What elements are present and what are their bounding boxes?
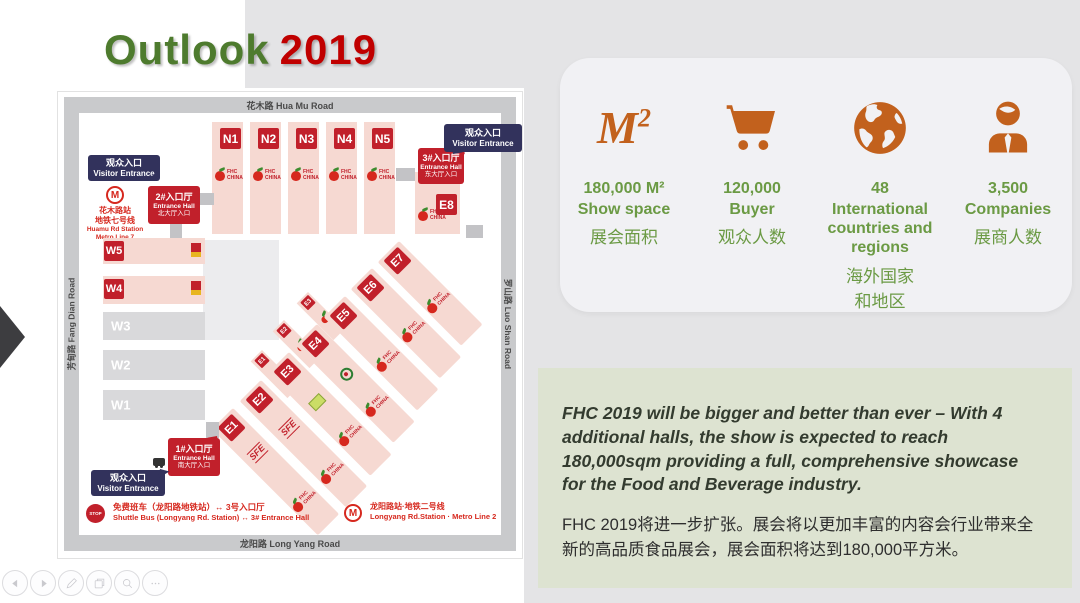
road-luo-shan: 罗山路 Luo Shan Road: [501, 113, 516, 535]
corridor: [170, 224, 182, 239]
hall-n4: N4 FHC CHINA: [326, 122, 357, 234]
prowine-logo: [191, 281, 201, 295]
stat-label: International countries and regions: [816, 200, 944, 258]
page-title: Outlook2019: [104, 26, 377, 74]
stat-value: 3,500: [944, 180, 1072, 198]
hall-n5: N5 FHC CHINA: [364, 122, 395, 234]
stat-value: 180,000 M²: [560, 180, 688, 198]
fhc-china-logo: FHC CHINA: [253, 170, 284, 181]
corridor: [200, 193, 214, 205]
hall-n1: N1 FHC CHINA: [212, 122, 243, 234]
stat-label-zh: 海外国家和地区: [838, 262, 922, 312]
previous-slide-button[interactable]: [2, 570, 28, 596]
fhc-china-logo: FHC CHINA: [374, 344, 404, 374]
pen-tool-button[interactable]: [58, 570, 84, 596]
apple-icon: [418, 211, 428, 221]
stat-label: Buyer: [688, 200, 816, 219]
title-outlook: Outlook: [104, 26, 270, 73]
metro-line2-note: 龙阳路站·地铁二号线 Longyang Rd.Station · Metro L…: [370, 502, 520, 522]
prowine-logo: [191, 243, 201, 257]
fhc-china-logo: FHC CHINA: [329, 170, 360, 181]
hall-w5-label: W5: [104, 241, 124, 261]
description-block: FHC 2019 will be bigger and better than …: [538, 368, 1072, 588]
hall-w2-label: W2: [111, 358, 131, 373]
central-plaza: [203, 240, 279, 340]
metro-line7-label: 花木路站 地铁七号线 Huamu Rd Station Metro Line 7: [72, 206, 158, 242]
stat-buyers: 120,000 Buyer 观众人数: [688, 82, 816, 312]
hall-n1-label: N1: [220, 128, 241, 149]
hall-n2-label: N2: [258, 128, 279, 149]
road-hua-mu: 花木路 Hua Mu Road: [64, 97, 516, 113]
shuttle-bus-note: 免费班车（龙阳路地铁站）↔ 3号入口厅 Shuttle Bus (Longyan…: [113, 502, 348, 523]
stat-show-space: M2 180,000 M² Show space 展会面积: [560, 82, 688, 312]
more-options-button[interactable]: [142, 570, 168, 596]
floor-plan-map: 花木路 Hua Mu Road 龙阳路 Long Yang Road 芳甸路 F…: [58, 92, 522, 558]
corridor: [396, 168, 415, 181]
wreath-logo: [338, 365, 356, 383]
stat-label-zh: 展商人数: [944, 223, 1072, 248]
shopping-cart-icon: [688, 82, 816, 174]
apple-icon: [291, 171, 301, 181]
stat-countries: 48 International countries and regions 海…: [816, 82, 944, 312]
slideshow-toolbar: [2, 570, 168, 596]
hall-n3-label: N3: [296, 128, 317, 149]
metro-logo-icon: M: [106, 186, 124, 204]
square-meters-icon: M2: [560, 82, 688, 174]
fhc-china-logo: FHC CHINA: [424, 286, 454, 316]
entrance-hall-2-badge: 2#入口厅 Entrance Hall 北大厅入口: [148, 186, 200, 224]
fhc-china-logo: FHC CHINA: [363, 389, 393, 419]
entrance-hall-1-badge: 1#入口厅 Entrance Hall 南大厅入口: [168, 438, 220, 476]
corridor: [466, 225, 483, 238]
zoom-button[interactable]: [114, 570, 140, 596]
description-chinese: FHC 2019将进一步扩张。展会将以更加丰富的内容会行业带来全新的高品质食品展…: [562, 513, 1046, 563]
fhc-china-logo: FHC CHINA: [367, 170, 398, 181]
road-long-yang: 龙阳路 Long Yang Road: [64, 535, 516, 551]
fhc-china-logo: FHC CHINA: [291, 170, 322, 181]
hall-n2: N2 FHC CHINA: [250, 122, 281, 234]
fhc-china-logo: FHC CHINA: [418, 210, 449, 221]
stat-value: 48: [816, 180, 944, 198]
title-year: 2019: [280, 26, 377, 73]
fhc-china-logo: FHC CHINA: [336, 418, 366, 448]
hall-n3: N3 FHC CHINA: [288, 122, 319, 234]
road-fang-dian: 芳甸路 Fang Dian Road: [64, 113, 79, 535]
metro-logo-icon: M: [344, 504, 362, 522]
stat-label: Companies: [944, 200, 1072, 219]
presentation-slide: Outlook2019 花木路 Hua Mu Road 龙阳路 Long Yan…: [0, 0, 1080, 603]
hall-w4-label: W4: [104, 279, 124, 299]
fhc-china-logo: FHC CHINA: [318, 456, 348, 486]
visitor-entrance-badge-left: 观众入口 Visitor Entrance: [88, 155, 160, 181]
fhc-china-logo: FHC CHINA: [400, 315, 430, 345]
stop-sign-icon: STOP: [86, 504, 105, 523]
description-english: FHC 2019 will be bigger and better than …: [562, 402, 1038, 497]
stat-label: Show space: [560, 200, 688, 219]
next-slide-button[interactable]: [30, 570, 56, 596]
hall-w5: W5: [103, 238, 205, 264]
hall-w3-label: W3: [111, 319, 131, 334]
stat-label-zh: 观众人数: [688, 223, 816, 248]
stat-companies: 3,500 Companies 展商人数: [944, 82, 1072, 312]
businessman-icon: [944, 82, 1072, 174]
sfe-logo: SFE: [247, 442, 268, 463]
sfe-logo: SFE: [278, 417, 299, 438]
slides-overview-button[interactable]: [86, 570, 112, 596]
stat-value: 120,000: [688, 180, 816, 198]
hall-n5-label: N5: [372, 128, 393, 149]
hall-w4: W4: [103, 276, 205, 304]
slide-nav-arrow[interactable]: [0, 306, 25, 368]
globe-icon: [816, 82, 944, 174]
apple-icon: [329, 171, 339, 181]
apple-icon: [253, 171, 263, 181]
hall-w1-label: W1: [111, 398, 131, 413]
apple-icon: [367, 171, 377, 181]
fhc-china-logo: FHC CHINA: [215, 170, 246, 181]
hall-w1: W1: [103, 390, 205, 420]
green-food-logo: [308, 393, 326, 411]
hall-w2: W2: [103, 350, 205, 380]
visitor-entrance-badge-bottom: 观众入口 Visitor Entrance: [91, 470, 165, 496]
hall-w3: W3: [103, 312, 205, 340]
visitor-entrance-badge-right: 观众入口 Visitor Entrance: [444, 124, 522, 152]
hall-n4-label: N4: [334, 128, 355, 149]
stats-card: M2 180,000 M² Show space 展会面积 120,000 Bu…: [560, 58, 1072, 312]
apple-icon: [215, 171, 225, 181]
stat-label-zh: 展会面积: [560, 223, 688, 248]
